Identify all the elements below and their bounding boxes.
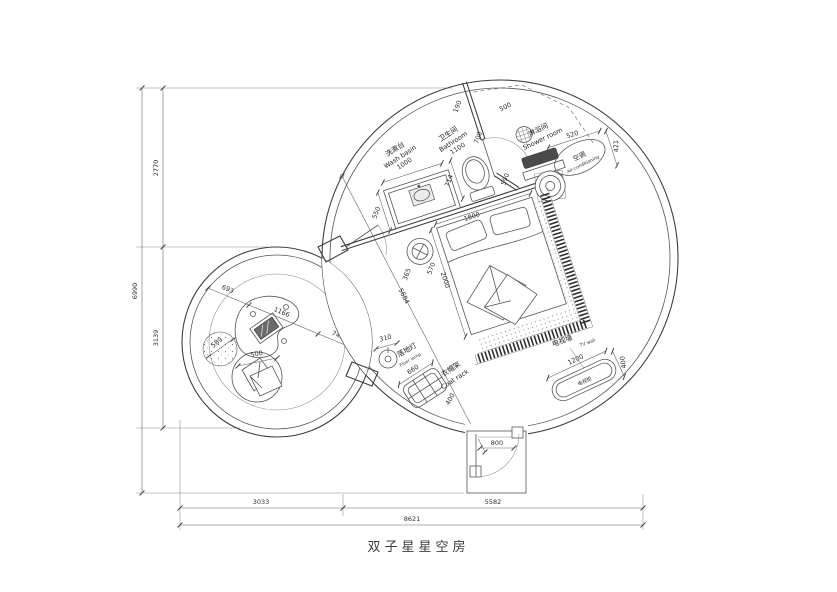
dim-stool-a: 365: [401, 267, 413, 281]
bottom-dimensions: 3033 5582 8621: [178, 420, 646, 530]
dim-width-total: 8621: [404, 515, 421, 523]
dim-tv-l: 1200: [566, 353, 584, 367]
dim-left-a: 693: [221, 283, 236, 295]
dim-stool-b: 570: [425, 261, 437, 275]
dim-bath-door: 700: [472, 130, 484, 144]
dim-bed-l: 2000: [439, 271, 452, 289]
tv-wall-label-en: TV wall: [578, 337, 596, 349]
dim-shower-door: 500: [498, 101, 513, 114]
dim-lamp: 310: [378, 333, 392, 344]
dim-width-right: 5582: [485, 498, 502, 506]
bathroom-label: 卫生间 Bathroom 1100: [432, 121, 473, 160]
dim-height-total: 6990: [131, 283, 139, 300]
side-table: 589: [203, 332, 237, 366]
drawing-title: 双子星星空房: [0, 536, 837, 555]
floor-plan-canvas: 6990 2770 3139 3033 5582 8621: [0, 0, 837, 592]
floor-plan-svg: 6990 2770 3139 3033 5582 8621: [0, 0, 837, 592]
dim-width-left: 3033: [253, 498, 270, 506]
dim-wall-mid: 590: [499, 172, 511, 186]
dim-ac-d: 421: [612, 140, 621, 153]
tv-cabinet-label: 电视柜: [576, 375, 593, 388]
dim-wall-top: 190: [452, 99, 464, 113]
entrance: 800: [465, 424, 528, 493]
dim-height-upper: 2770: [152, 160, 160, 177]
door-jamb-bottom: [470, 466, 481, 477]
tv-area: 电视墙 TV wall 电视柜 1200 400: [542, 333, 635, 410]
dim-counter-d: 550: [371, 206, 383, 220]
passage-door-swing: [378, 225, 386, 255]
kidney-table: [235, 296, 299, 357]
dim-entry: 800: [491, 439, 503, 447]
ottoman: 500: [232, 349, 282, 402]
dim-tv-d: 400: [618, 355, 628, 369]
toilet: [458, 153, 496, 202]
bathroom-top-wall: [463, 82, 485, 140]
washbasin-label: 洗漱台 Wash basin 1000: [377, 135, 422, 177]
dim-height-lower: 3139: [152, 330, 160, 347]
dim-diag: 5684: [396, 287, 411, 305]
dim-ac-w: 520: [565, 129, 579, 140]
door-jamb-top: [512, 427, 523, 438]
